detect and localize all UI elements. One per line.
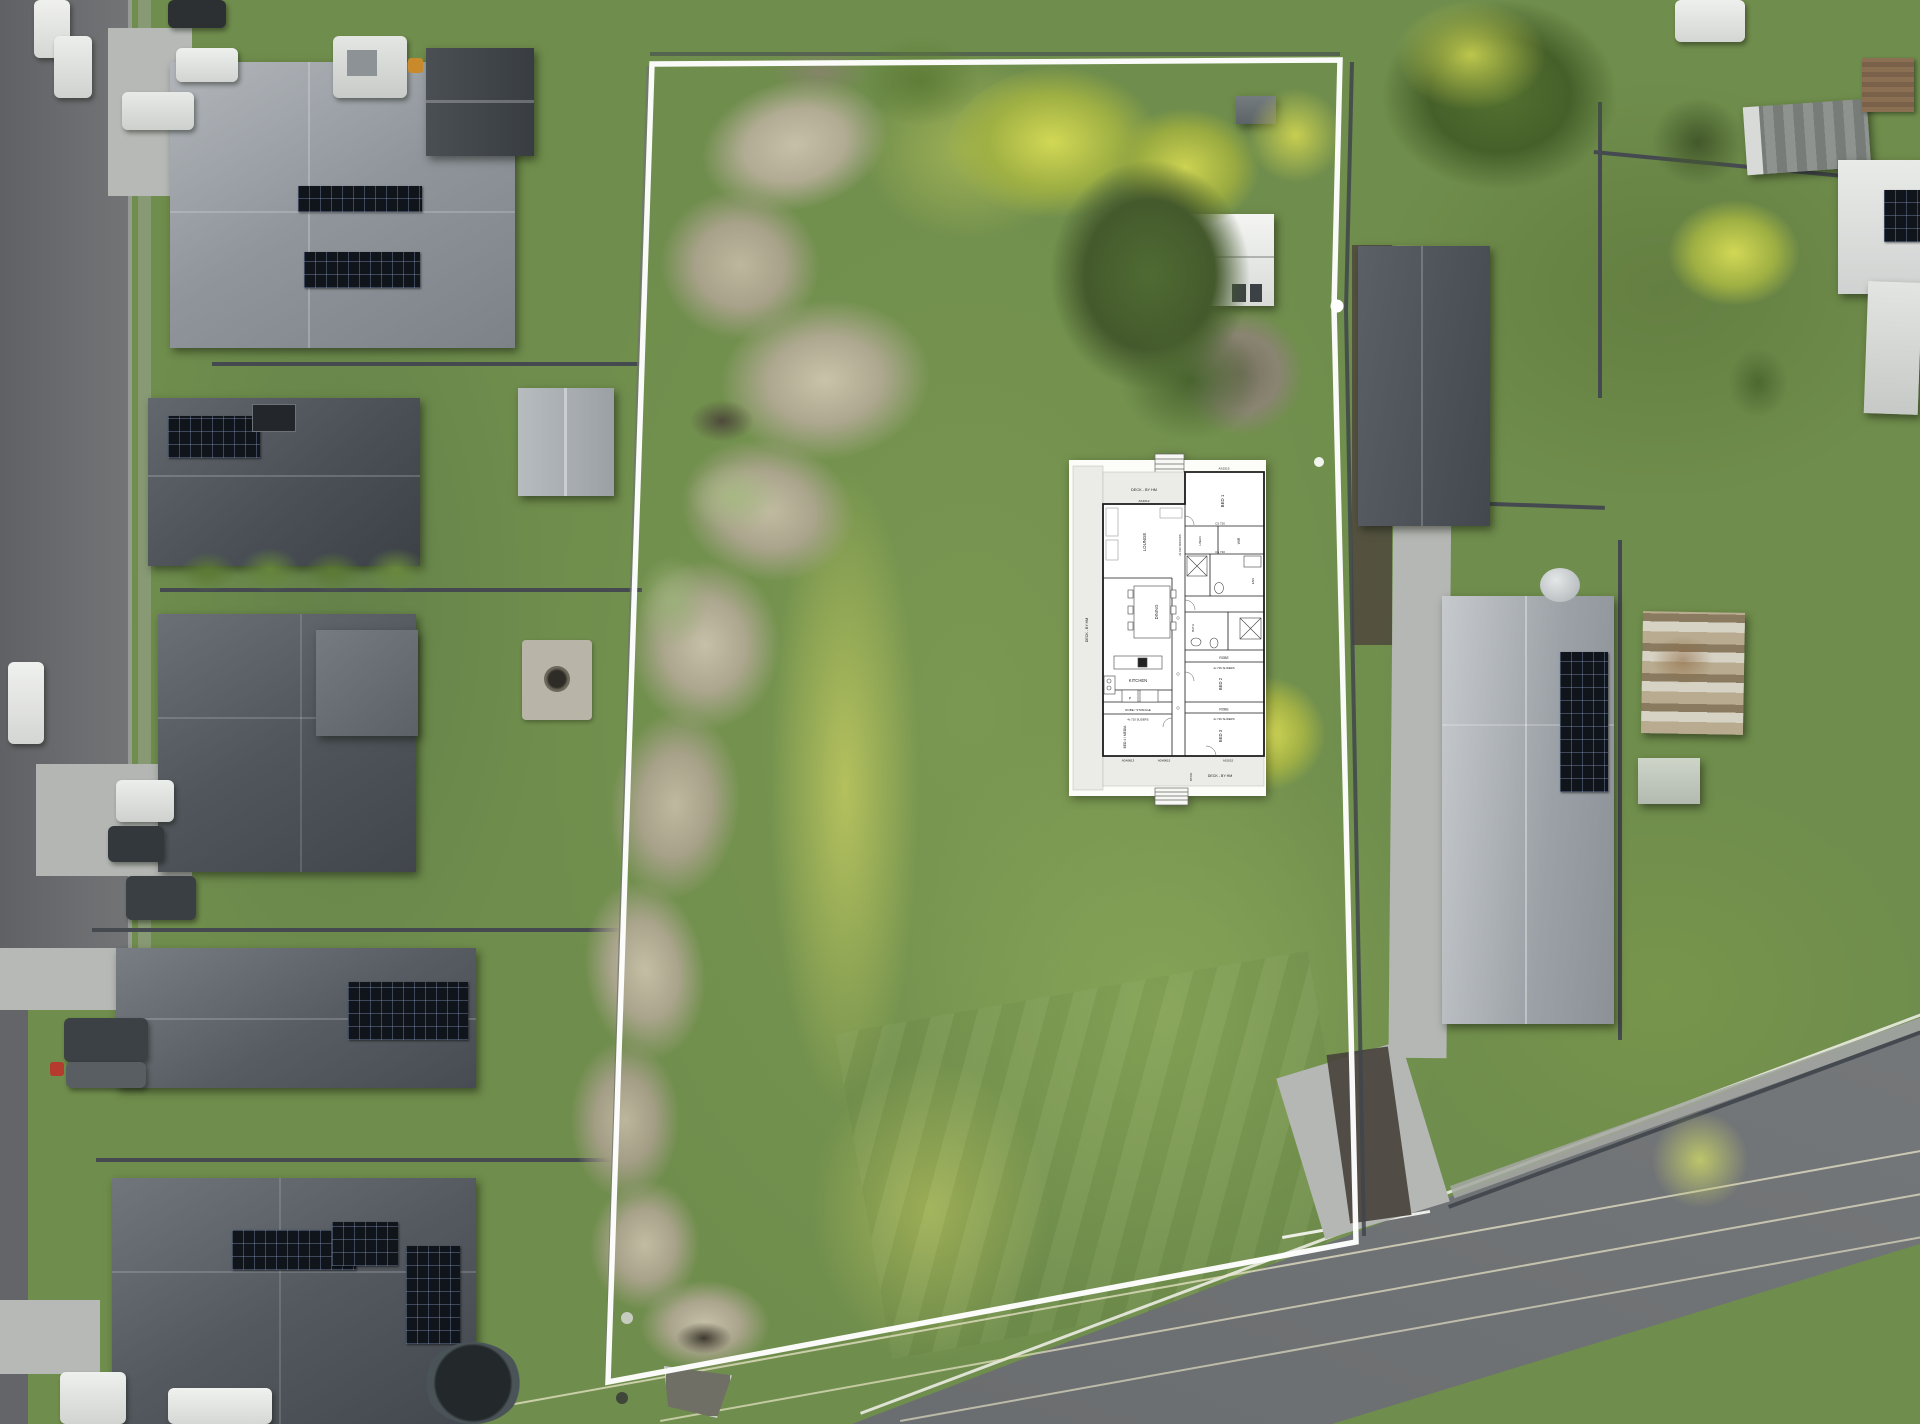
plan-label-bed4: BED 4 / MEDIA [1123, 725, 1127, 749]
plan-label-ens: ENS [1251, 578, 1255, 584]
dining-table-icon [1128, 586, 1176, 638]
plan-code: ADH0613 [1122, 759, 1135, 763]
plan-label-wir: WIR [1237, 537, 1241, 544]
plan-label-robe-storage: ROBE / STORAGE [1125, 708, 1151, 712]
plan-code: 4x 720 SLIDERS [1213, 717, 1234, 721]
plan-code: 4x 720 SLIDERS [1127, 718, 1148, 722]
plan-label-robe: ROBE [1219, 656, 1229, 660]
aerial-photo: DECK - BY HM AS1012 AS1515 LOUNGE BED 1 … [0, 0, 1920, 1424]
plan-code: AS1012 [1138, 499, 1149, 503]
plan-code: AS1515 [1218, 467, 1229, 471]
survey-marker [1331, 300, 1344, 313]
plan-code: CS 720 [1215, 522, 1225, 526]
manhole [616, 1392, 628, 1404]
plan-label-lounge: LOUNGE [1142, 533, 1147, 552]
plan-code: CS 720 [1215, 550, 1225, 554]
plan-label-deck-bottom: DECK - BY HM [1208, 774, 1233, 778]
plan-outer-wall [1103, 472, 1264, 756]
plan-label-kitchen: KITCHEN [1129, 678, 1147, 683]
plan-code: 4x 720 SLIDERS [1213, 666, 1234, 670]
plan-code: ADH0615 [1158, 759, 1171, 763]
boundary-overlay [0, 0, 1920, 1424]
floor-plan-overlay: DECK - BY HM AS1012 AS1515 LOUNGE BED 1 … [1068, 450, 1268, 808]
plan-code: AS1015 [1223, 759, 1234, 763]
plan-label-bed2: BED 2 [1218, 677, 1223, 690]
plan-label-patio: PATIO [1189, 772, 1193, 781]
plan-label-linen: LINEN [1198, 536, 1202, 545]
plan-label-deck-top: DECK - BY HM [1131, 488, 1157, 492]
plan-label-bed3: BED 3 [1218, 729, 1223, 742]
plan-label-dining: DINING [1154, 605, 1159, 620]
manhole [621, 1312, 633, 1324]
plan-code: 2x 610 SDOORS [1178, 534, 1182, 555]
plan-label-bed1: BED 1 [1220, 494, 1225, 507]
plan-label-deck-left: DECK - BY HM [1085, 618, 1089, 643]
plan-label-robe: ROBE [1219, 708, 1229, 712]
survey-marker [1314, 457, 1324, 467]
plan-label-bath: BATH [1191, 624, 1195, 632]
